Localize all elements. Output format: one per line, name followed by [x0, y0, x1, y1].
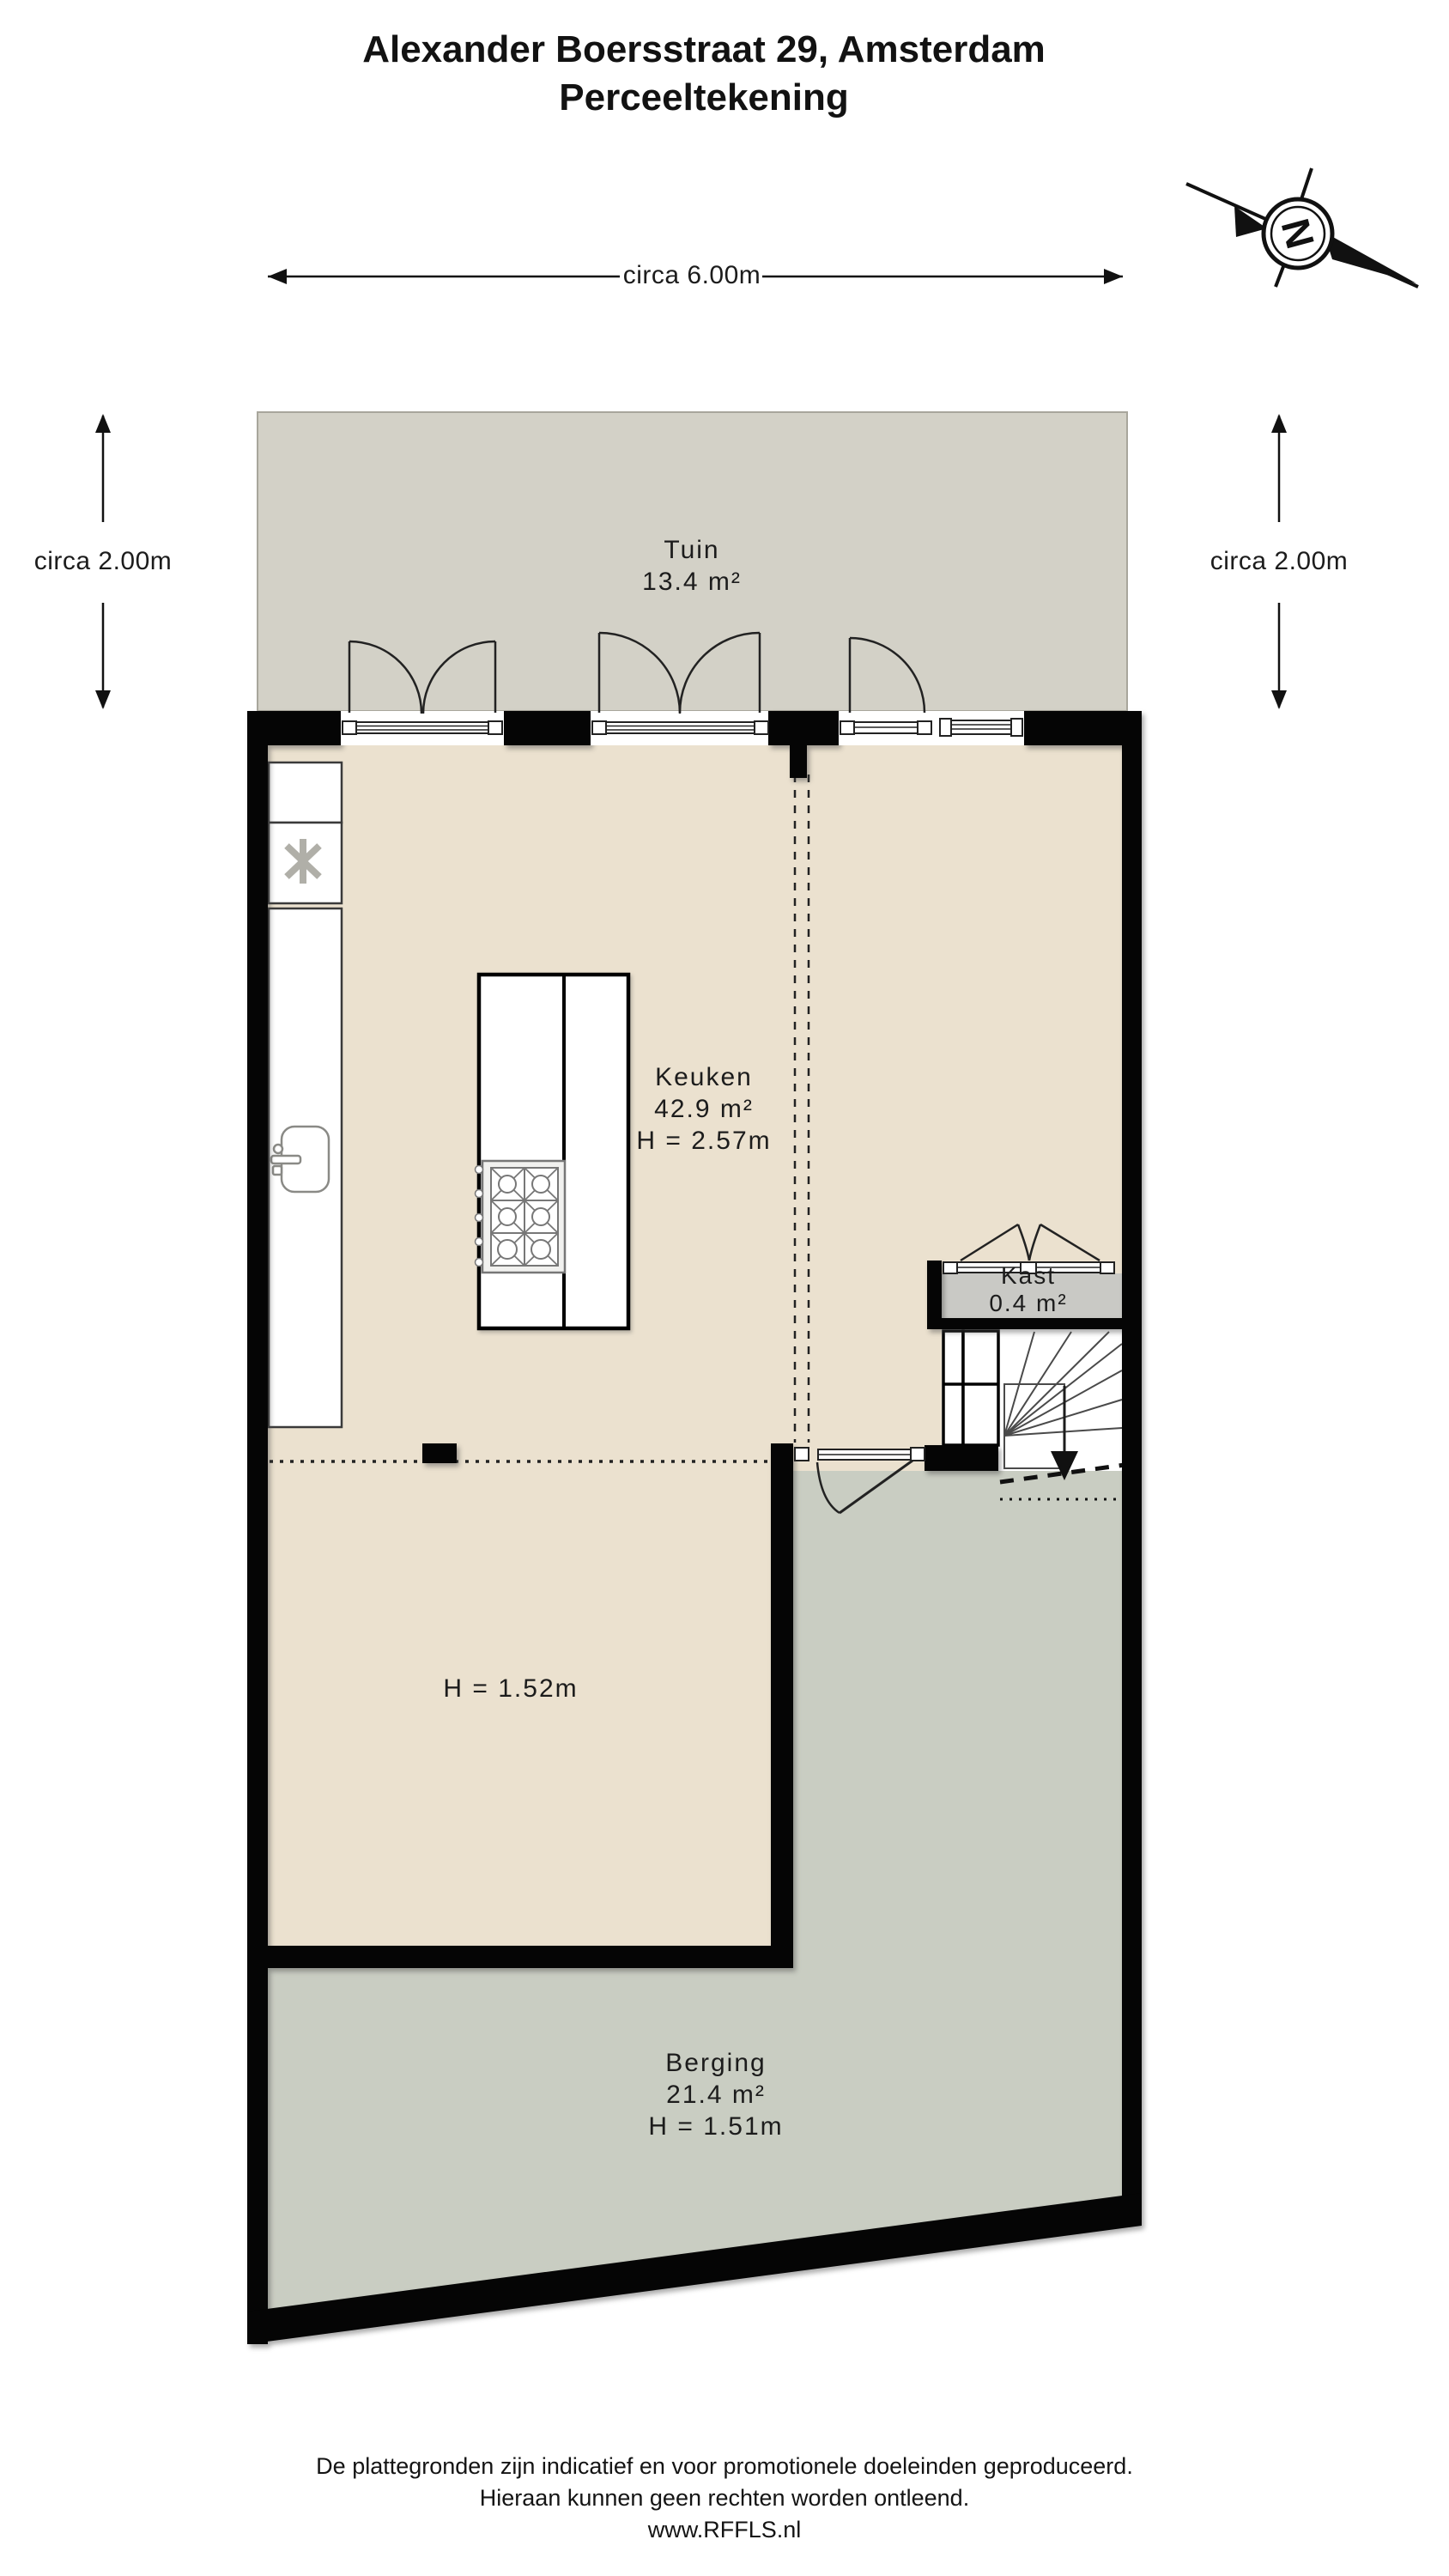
- tuin-area: 13.4 m²: [642, 566, 742, 598]
- room-label-tuin: Tuin 13.4 m²: [642, 534, 742, 598]
- kast-name: Kast: [989, 1262, 1067, 1290]
- disclaimer-line1: De plattegronden zijn indicatief en voor…: [0, 2451, 1449, 2482]
- room-label-berging: Berging 21.4 m² H = 1.51m: [648, 2047, 783, 2142]
- stove-icon: [476, 1161, 566, 1273]
- low-zone-height-label: H = 1.52m: [443, 1673, 578, 1704]
- room-label-kast: Kast 0.4 m²: [989, 1262, 1067, 1317]
- footer-website: www.RFFLS.nl: [0, 2514, 1449, 2546]
- disclaimer-line2: Hieraan kunnen geen rechten worden ontle…: [0, 2482, 1449, 2514]
- berging-area: 21.4 m²: [648, 2079, 783, 2111]
- floorplan-drawing: N: [0, 0, 1449, 2576]
- dimension-right-label: circa 2.00m: [1210, 547, 1349, 576]
- tuin-name: Tuin: [642, 534, 742, 566]
- kast-area: 0.4 m²: [989, 1290, 1067, 1317]
- berging-name: Berging: [648, 2047, 783, 2079]
- dimension-left-label: circa 2.00m: [34, 547, 173, 576]
- keuken-name: Keuken: [636, 1061, 771, 1093]
- floorplan-page: Alexander Boersstraat 29, Amsterdam Perc…: [0, 0, 1449, 2576]
- keuken-height: H = 2.57m: [636, 1125, 771, 1157]
- cabinet: [269, 762, 342, 823]
- room-label-keuken: Keuken 42.9 m² H = 2.57m: [636, 1061, 771, 1157]
- north-arrow-icon: N: [1186, 168, 1418, 287]
- dimension-width-label: circa 6.00m: [623, 261, 761, 290]
- berging-height: H = 1.51m: [648, 2111, 783, 2142]
- keuken-area: 42.9 m²: [636, 1093, 771, 1125]
- kitchen-island: [479, 975, 628, 1328]
- footer-disclaimer: De plattegronden zijn indicatief en voor…: [0, 2451, 1449, 2546]
